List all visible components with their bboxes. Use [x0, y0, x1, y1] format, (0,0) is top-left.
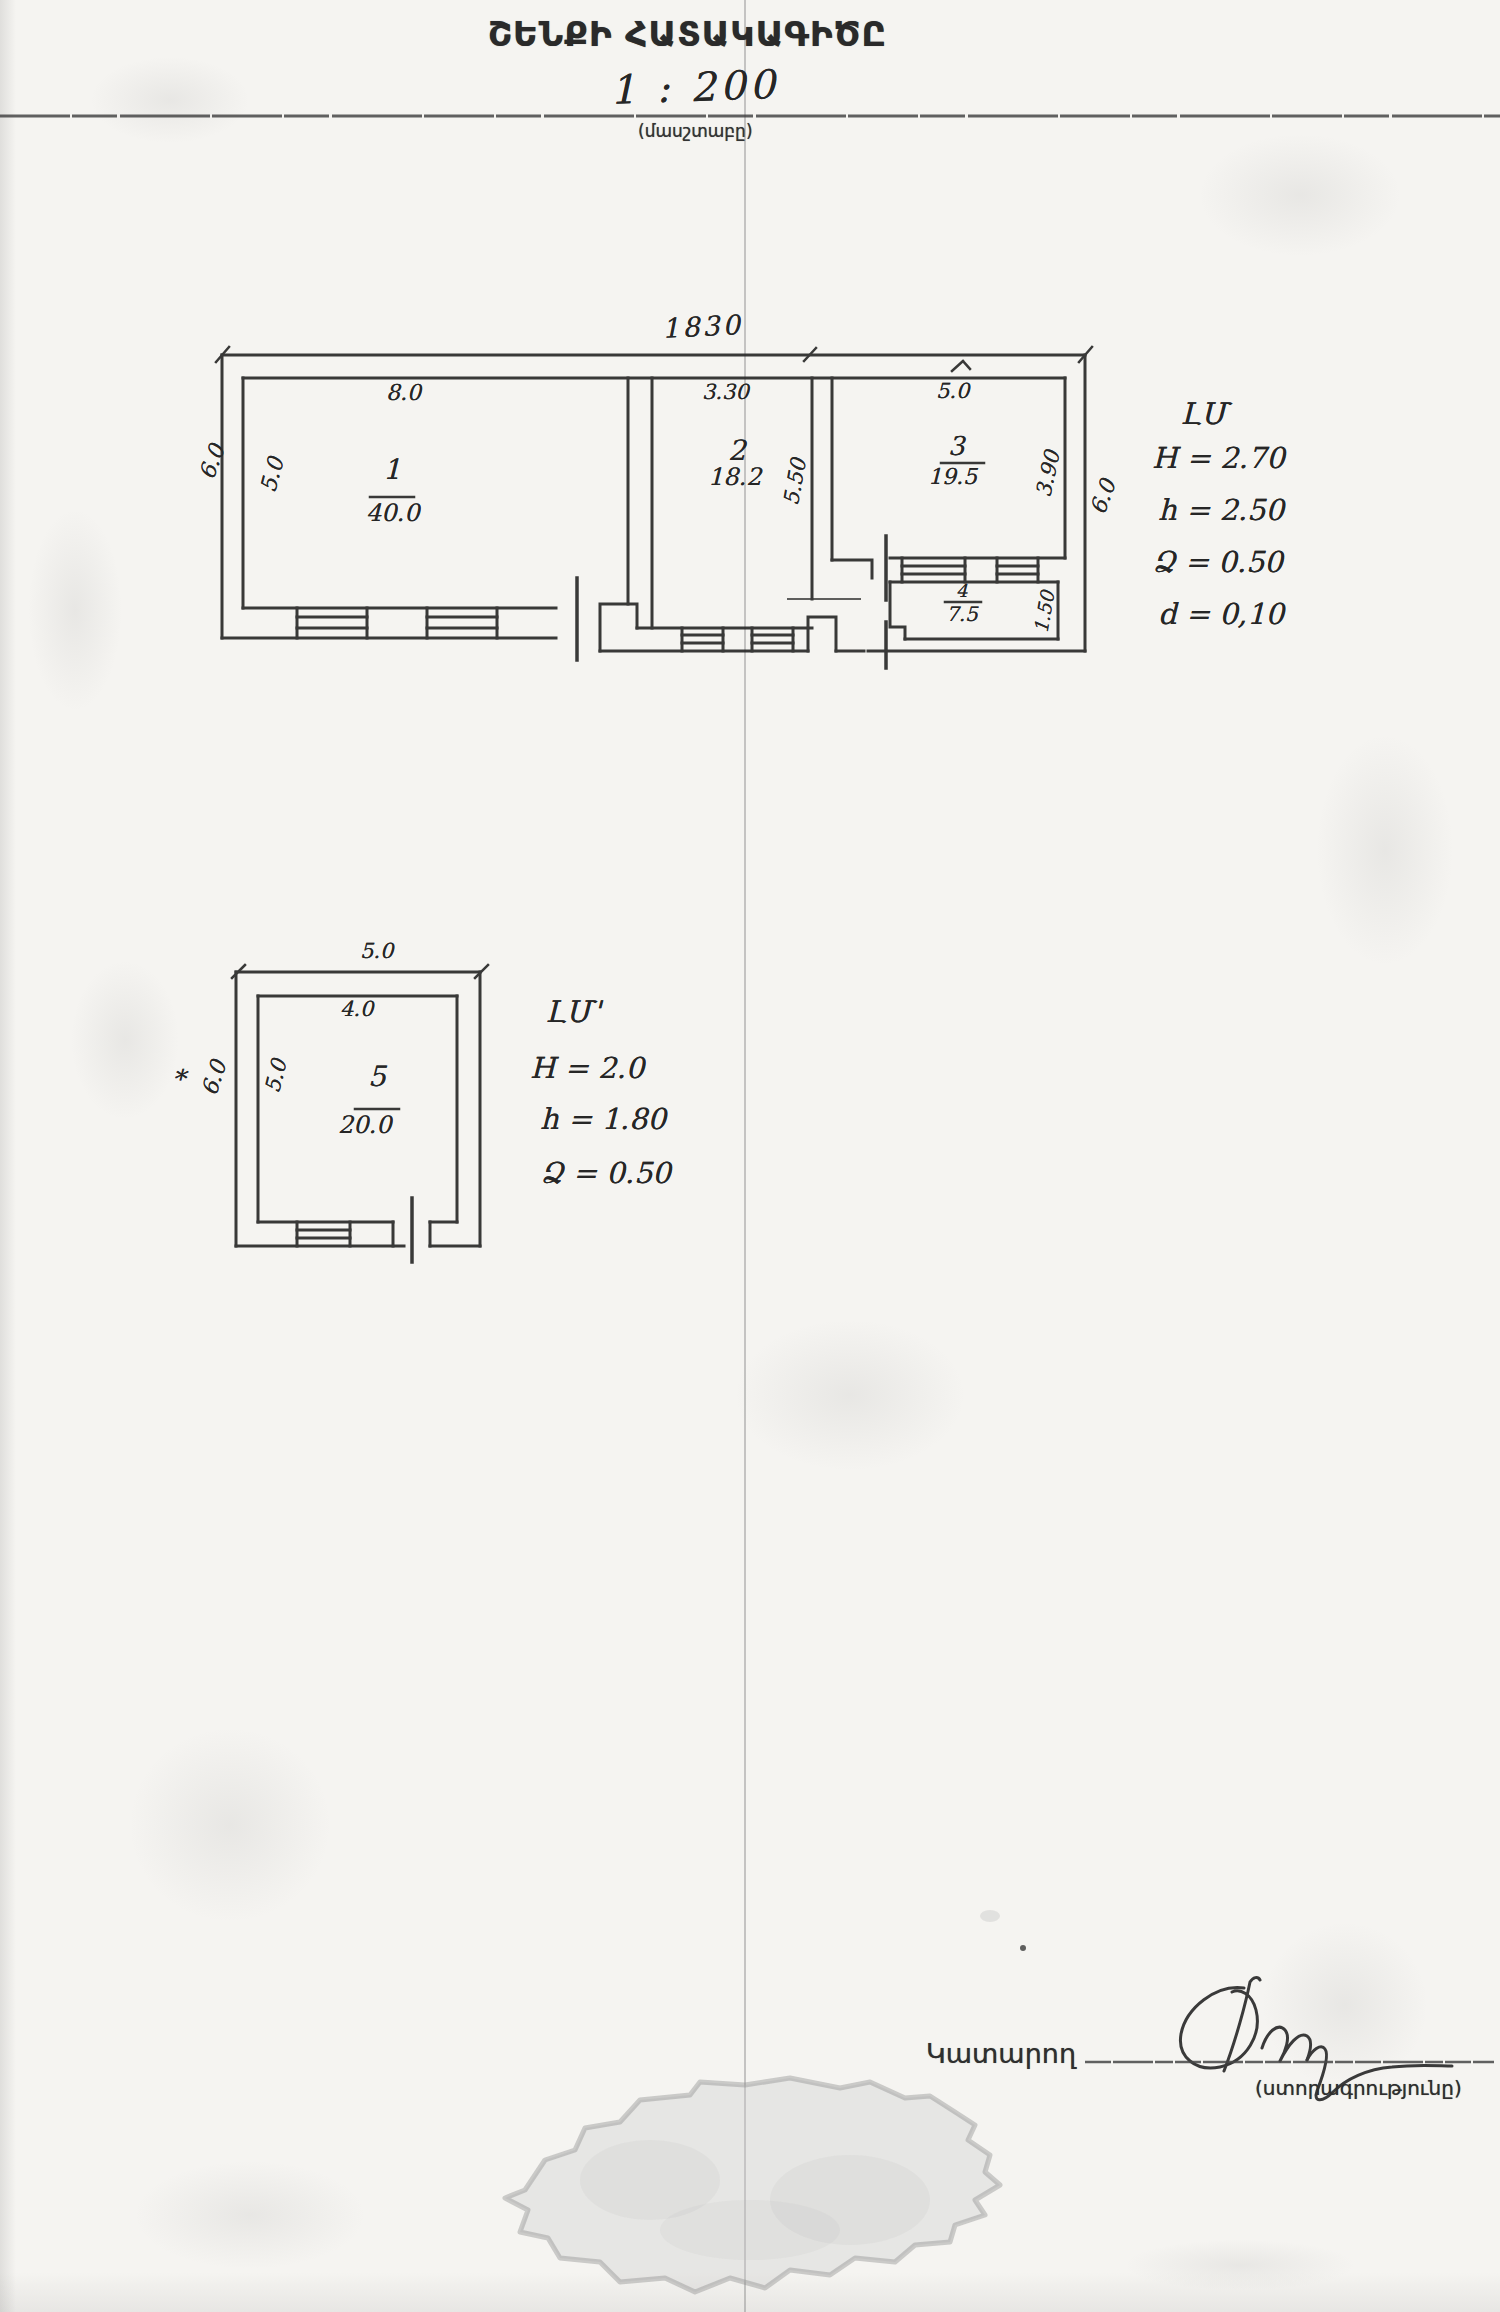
- room-2-area: 18.2: [708, 463, 761, 491]
- scale-ratio: 1 : 200: [609, 61, 779, 113]
- signature-caption: (ստորագրությունը): [1255, 2076, 1462, 2100]
- window-symbol: [682, 635, 793, 643]
- room-4-area: 7.5: [946, 602, 978, 626]
- scan-speck: [1020, 1945, 1026, 1951]
- dim-overall-width: 1830: [661, 309, 743, 344]
- executor-label: Կատարող: [926, 2038, 1076, 2069]
- room-5-number: 5: [368, 1060, 386, 1093]
- scale-caption: (մասշտաբը): [638, 121, 753, 141]
- asterisk-mark: *: [172, 1064, 185, 1094]
- dim-room1-width: 8.0: [386, 380, 421, 405]
- room-5-area: 20.0: [338, 1111, 391, 1139]
- window-symbol: [297, 617, 497, 628]
- scan-speck: [980, 1910, 1000, 1922]
- notes-1-header: ԼՄ: [1180, 396, 1227, 431]
- dim-room3-width: 5.0: [936, 379, 969, 403]
- room-1-area: 40.0: [366, 499, 419, 527]
- dimension-tick: [952, 361, 970, 371]
- dim2-inner-width: 4.0: [340, 997, 373, 1021]
- notes-2-line-dz: Ձ = 0.50: [540, 1156, 671, 1190]
- window-symbol: [297, 1230, 350, 1238]
- scanned-floor-plan-page: { "page": { "title": "ՇԵՆՔԻ ՀԱՏԱԿԱԳԻԾԸ",…: [0, 0, 1500, 2312]
- notes-1-line-H: H = 2.70: [1152, 441, 1285, 475]
- notes-1-line-dz: Ձ = 0.50: [1152, 545, 1283, 579]
- page-title: ՇԵՆՔԻ ՀԱՏԱԿԱԳԻԾԸ: [488, 14, 887, 54]
- stamp-blob: [505, 2078, 1000, 2292]
- room-1-number: 1: [383, 453, 401, 486]
- drawing-linework: [0, 0, 1500, 2312]
- notes-2-line-h: h = 1.80: [540, 1102, 666, 1136]
- notes-2-header: ԼՄ': [545, 994, 601, 1029]
- notes-2-line-H: H = 2.0: [530, 1051, 644, 1085]
- window-symbol: [902, 566, 1038, 574]
- dim2-outer-width: 5.0: [360, 939, 393, 963]
- room-3-area: 19.5: [928, 464, 977, 489]
- room-3-number: 3: [948, 431, 965, 461]
- room-4-number: 4: [956, 580, 967, 601]
- notes-1-line-d: d = 0,10: [1158, 597, 1284, 631]
- notes-1-line-h: h = 2.50: [1158, 493, 1284, 527]
- dim-room2-width: 3.30: [702, 380, 749, 404]
